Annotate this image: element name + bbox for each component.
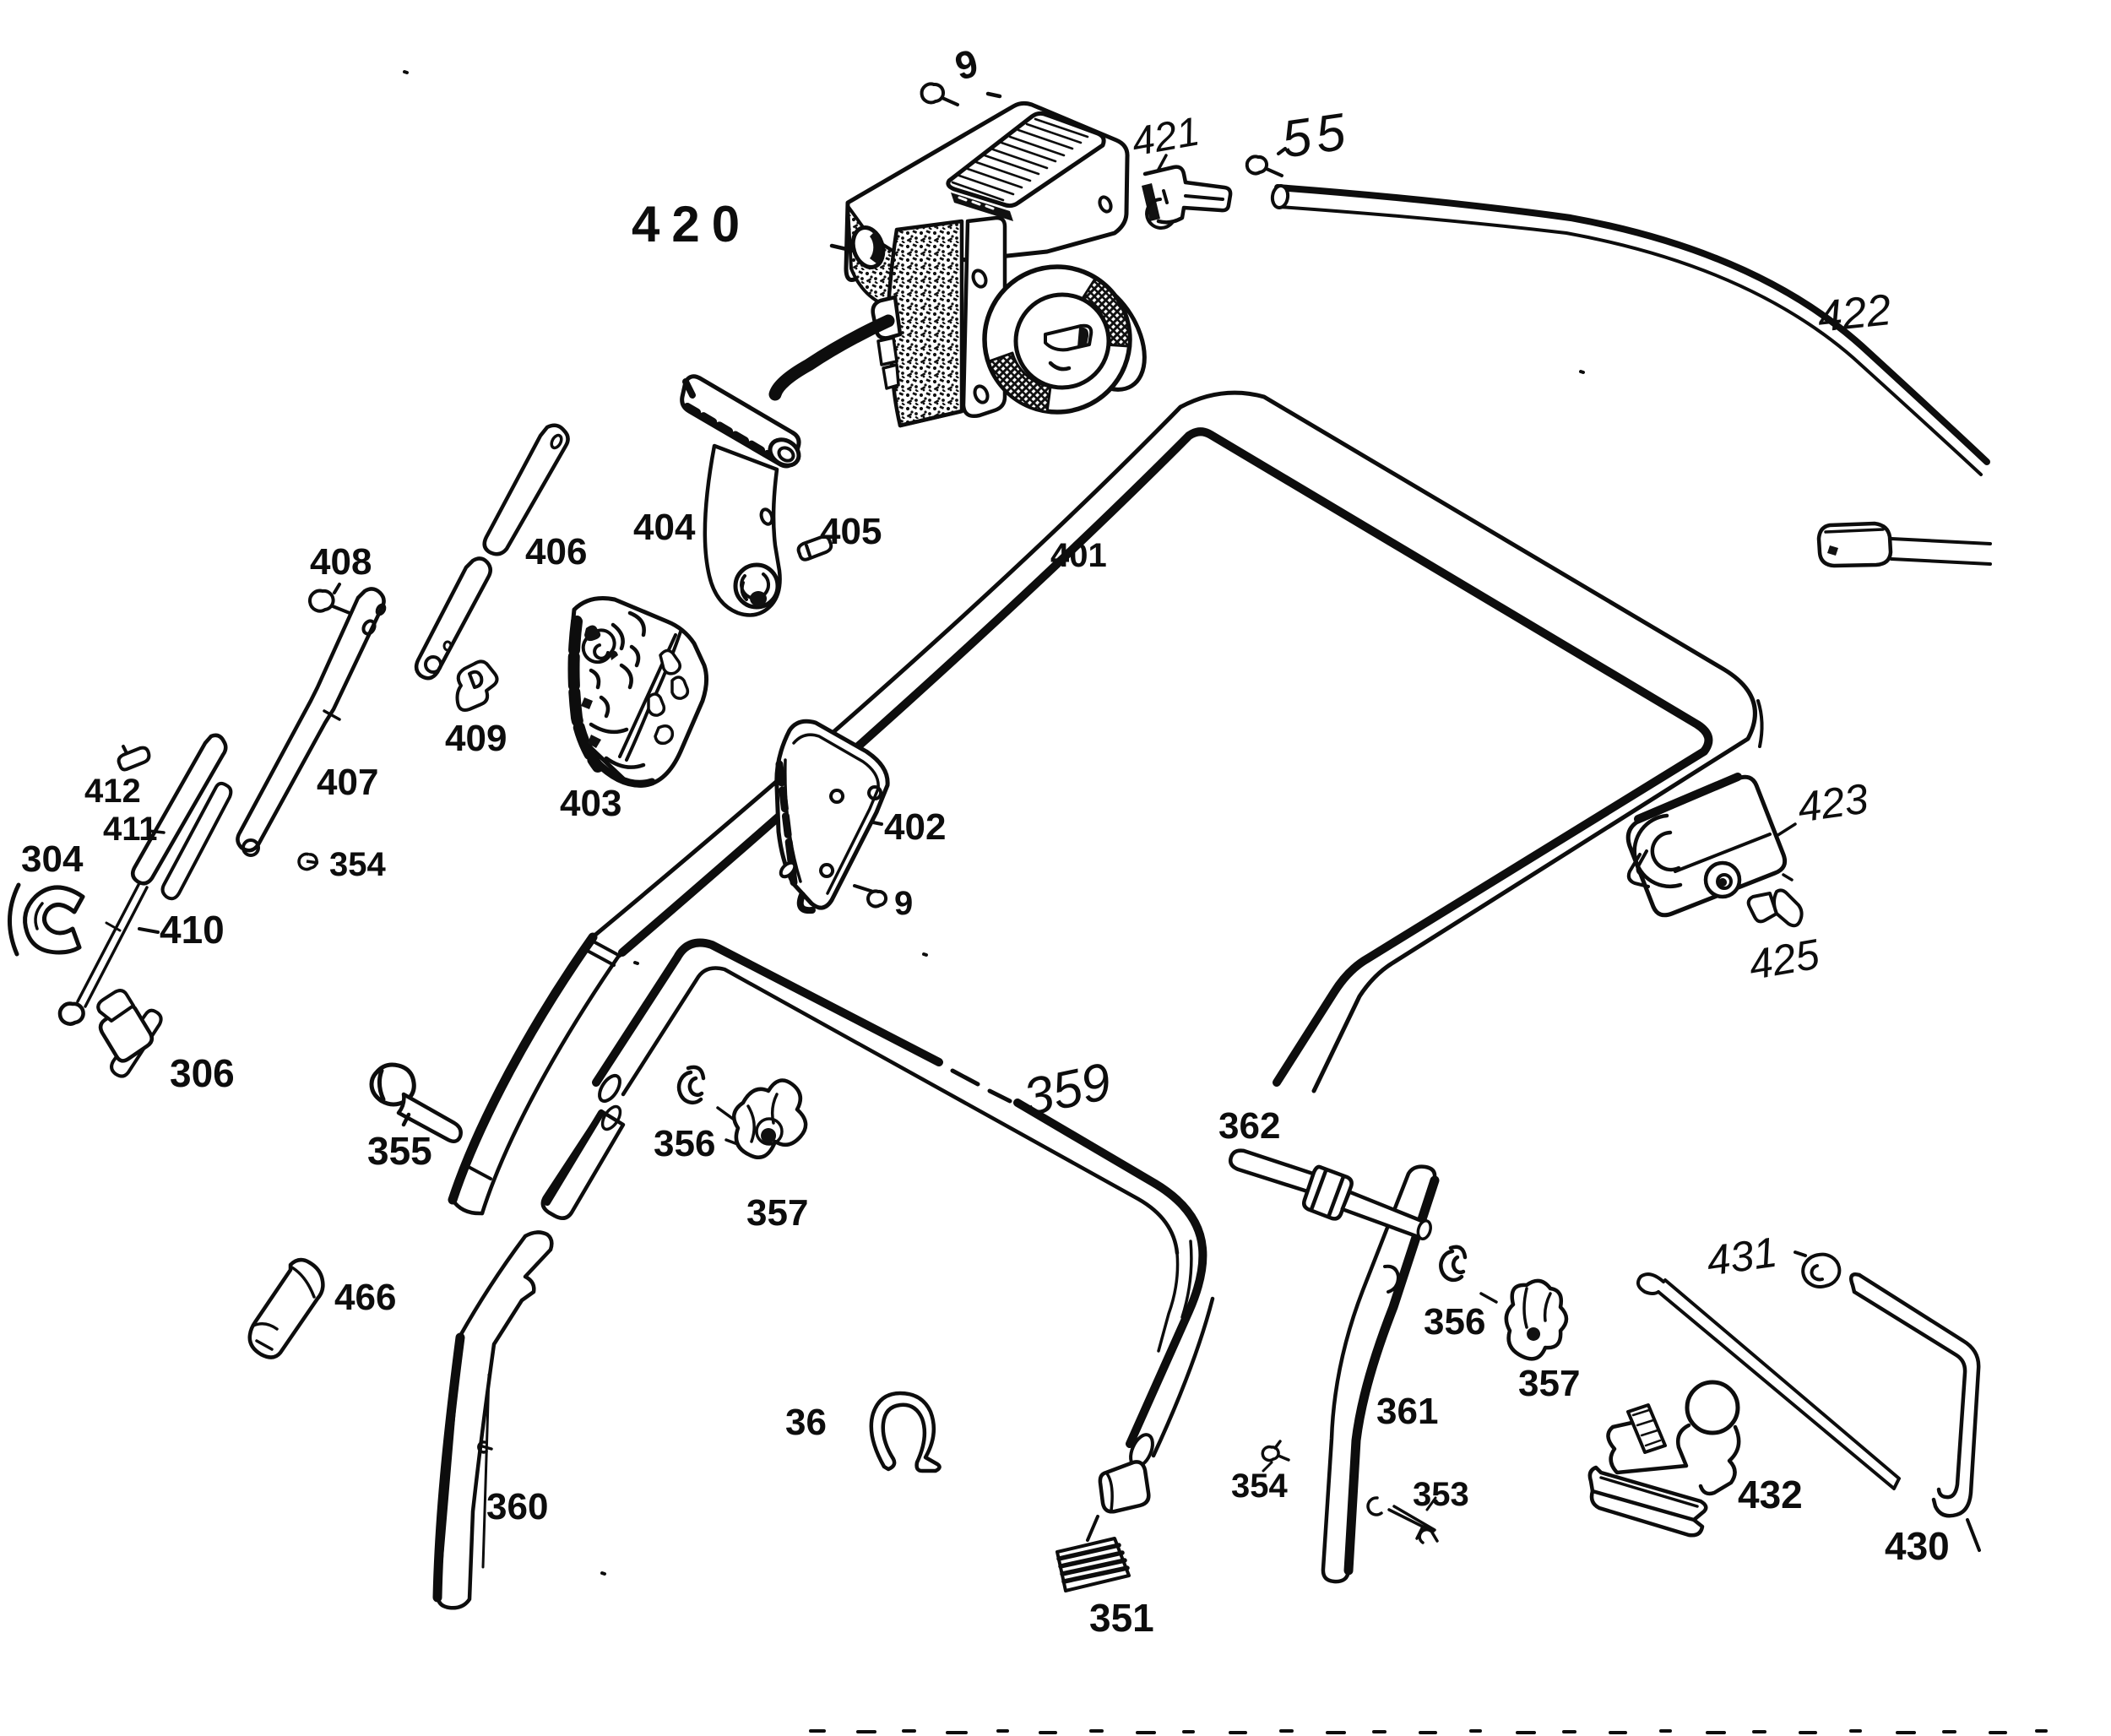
svg-text:404: 404 xyxy=(633,507,696,548)
svg-text:411: 411 xyxy=(103,811,158,848)
svg-text:304: 304 xyxy=(21,838,84,880)
svg-text:402: 402 xyxy=(884,806,946,848)
svg-text:412: 412 xyxy=(84,773,141,810)
svg-text:360: 360 xyxy=(486,1486,548,1527)
svg-text:9: 9 xyxy=(894,885,913,922)
svg-text:410: 410 xyxy=(160,908,225,952)
svg-text:357: 357 xyxy=(1518,1363,1580,1404)
svg-text:36: 36 xyxy=(785,1402,827,1443)
svg-text:362: 362 xyxy=(1218,1105,1280,1147)
svg-text:422: 422 xyxy=(1815,285,1893,342)
svg-text:356: 356 xyxy=(654,1123,715,1164)
svg-text:406: 406 xyxy=(525,531,587,572)
svg-text:355: 355 xyxy=(367,1129,432,1173)
svg-text:354: 354 xyxy=(1231,1467,1288,1505)
svg-text:361: 361 xyxy=(1376,1391,1438,1432)
svg-text:431: 431 xyxy=(1704,1229,1780,1285)
svg-text:55: 55 xyxy=(1278,102,1354,170)
svg-text:354: 354 xyxy=(329,846,386,883)
svg-text:403: 403 xyxy=(560,783,621,824)
svg-text:420: 420 xyxy=(632,196,752,252)
svg-text:306: 306 xyxy=(170,1051,235,1095)
svg-text:423: 423 xyxy=(1794,774,1871,831)
svg-text:408: 408 xyxy=(310,541,372,583)
svg-text:405: 405 xyxy=(820,511,882,552)
svg-text:353: 353 xyxy=(1413,1476,1469,1513)
svg-text:409: 409 xyxy=(445,718,507,759)
svg-text:432: 432 xyxy=(1738,1473,1803,1516)
svg-text:351: 351 xyxy=(1089,1596,1154,1640)
svg-text:356: 356 xyxy=(1424,1301,1485,1343)
svg-text:357: 357 xyxy=(746,1192,808,1234)
svg-text:466: 466 xyxy=(334,1277,396,1318)
svg-text:430: 430 xyxy=(1885,1524,1950,1568)
svg-text:407: 407 xyxy=(317,762,378,803)
svg-text:401: 401 xyxy=(1050,537,1107,574)
